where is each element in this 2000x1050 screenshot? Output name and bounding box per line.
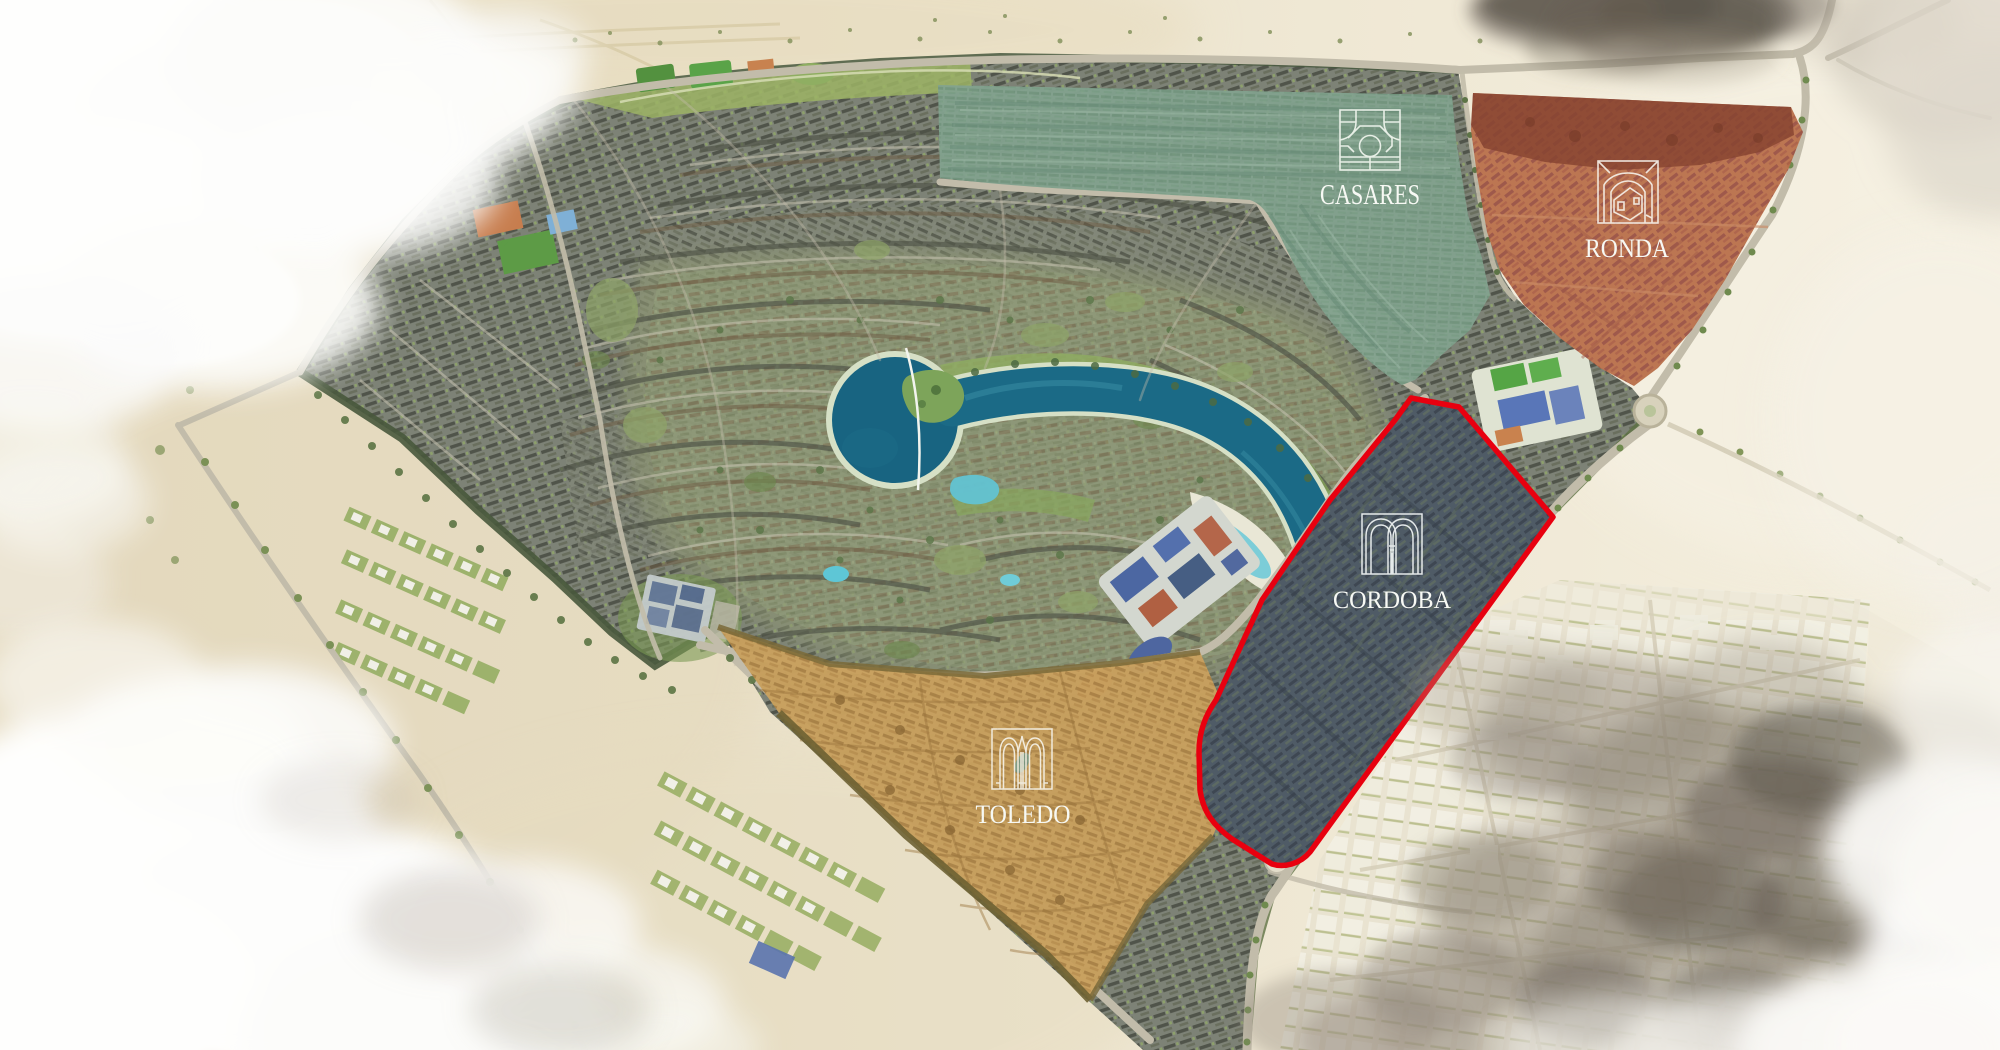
svg-text:CORDOBA: CORDOBA — [1333, 587, 1451, 614]
svg-text:RONDA: RONDA — [1585, 234, 1669, 263]
svg-text:TOLEDO: TOLEDO — [976, 800, 1071, 829]
svg-text:CASARES: CASARES — [1320, 180, 1420, 211]
